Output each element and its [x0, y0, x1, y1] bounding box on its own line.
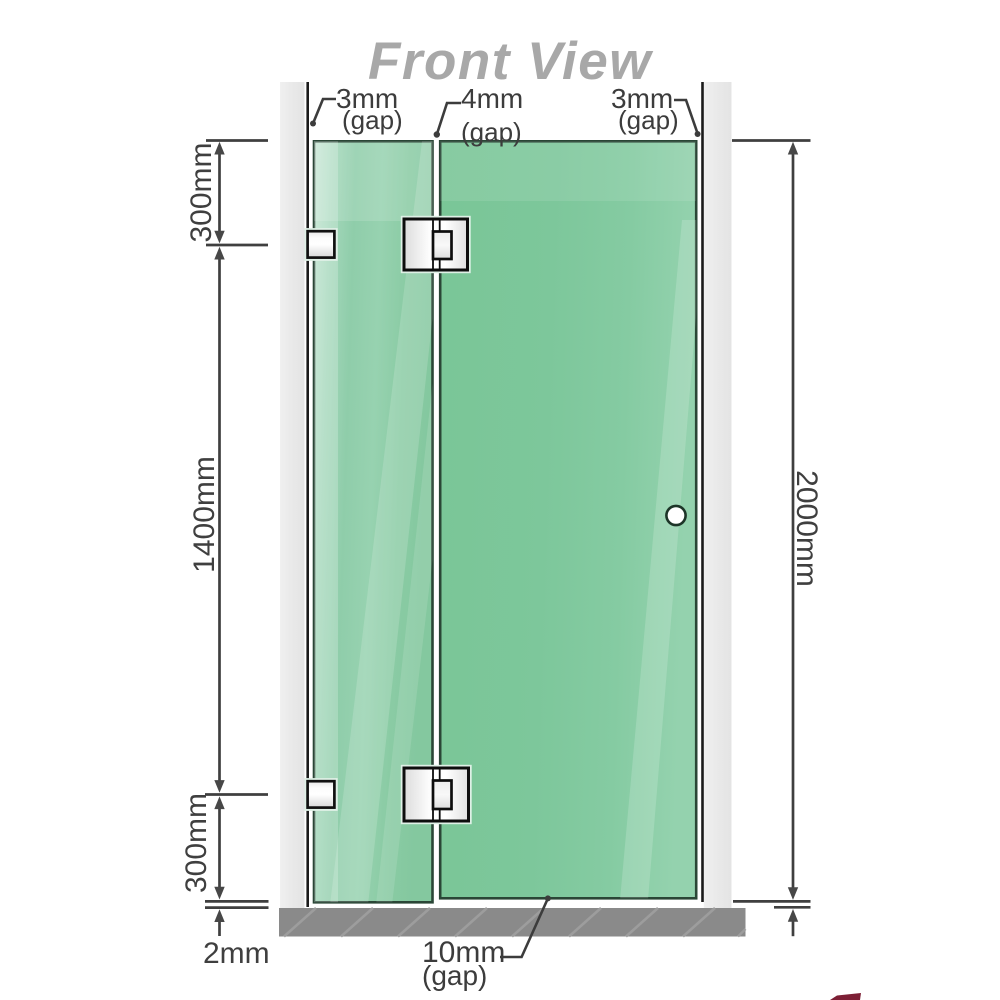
svg-text:(gap): (gap): [618, 105, 679, 135]
svg-text:2mm: 2mm: [203, 937, 270, 970]
svg-text:4mm: 4mm: [461, 83, 523, 114]
svg-text:(gap): (gap): [342, 105, 403, 135]
svg-text:1400mm: 1400mm: [188, 456, 221, 573]
svg-text:300mm: 300mm: [185, 142, 218, 242]
svg-text:300mm: 300mm: [180, 793, 213, 893]
svg-text:2000mm: 2000mm: [790, 470, 823, 587]
svg-text:(gap): (gap): [461, 117, 522, 147]
svg-text:(gap): (gap): [422, 960, 487, 991]
